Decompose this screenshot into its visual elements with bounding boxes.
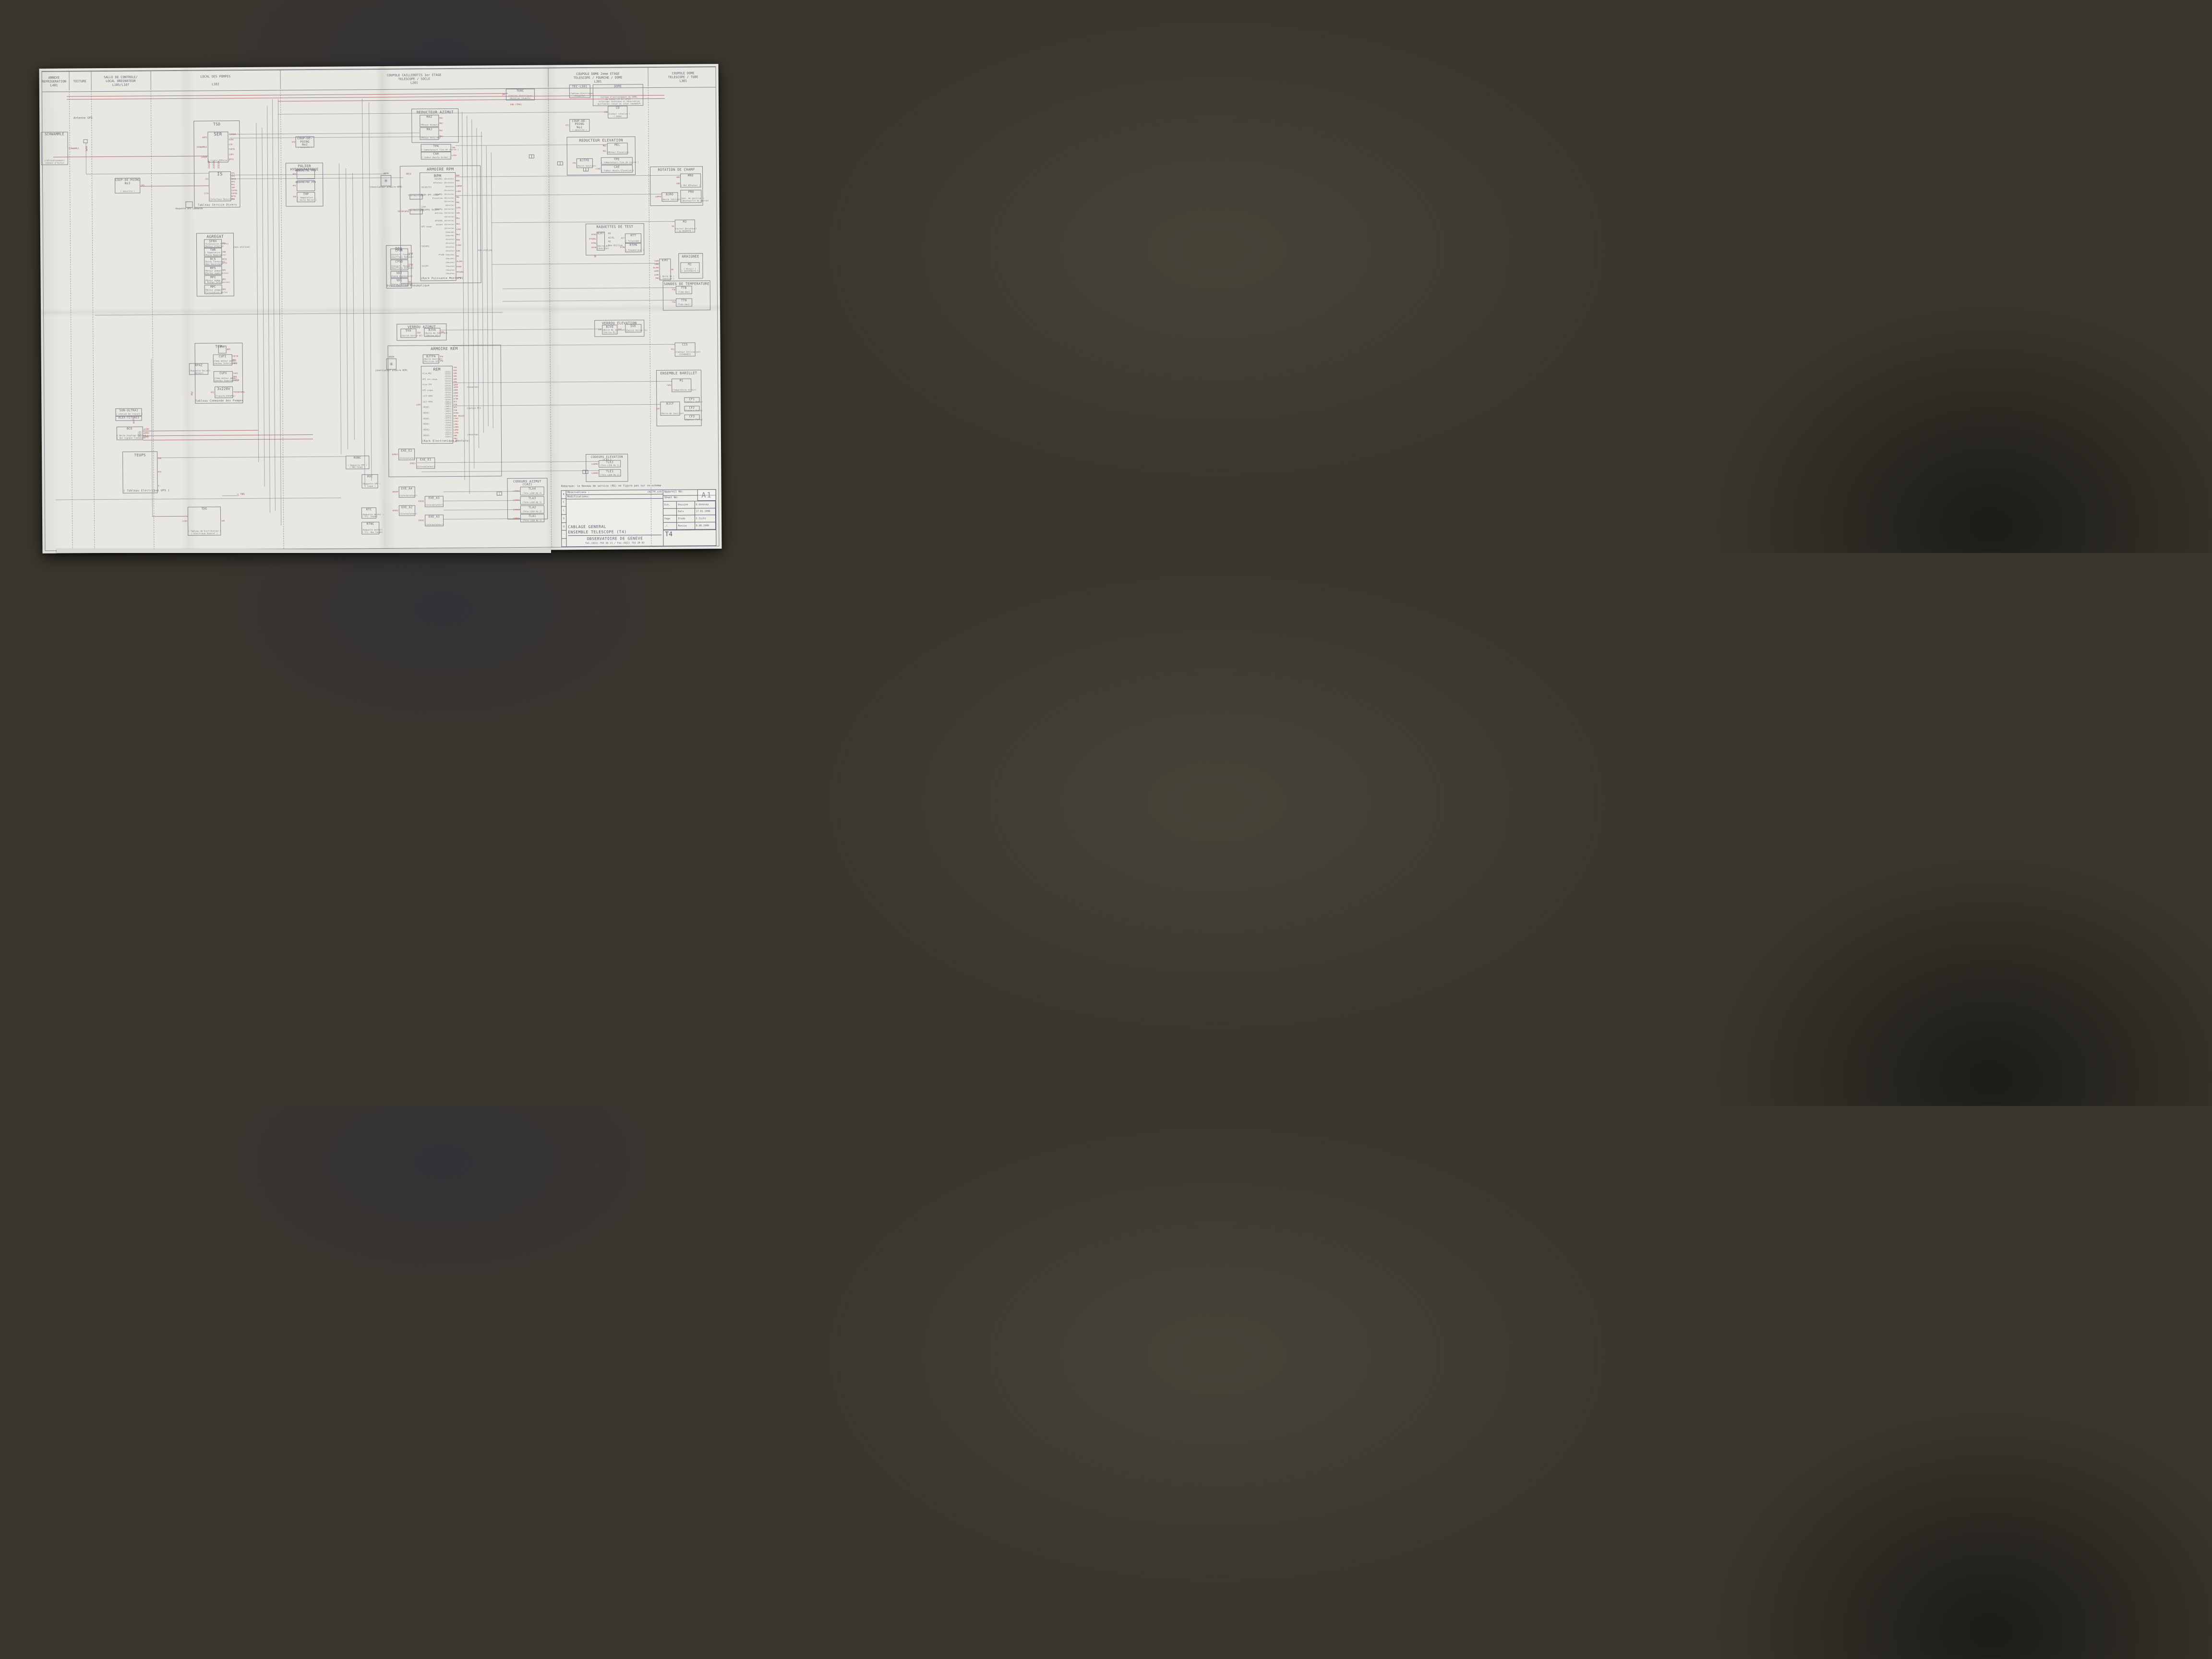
rpm-pin-lsro: LSRO (456, 191, 461, 192)
manometre-pps-title: MANOMETRE_PPS (295, 169, 316, 173)
bjve: BJVE(Boite de Jonction)(Verrou EL)SVESVE (602, 325, 618, 334)
raquette-ups-box: Raquette UPS commande (185, 201, 193, 207)
sva-subtitle: (Switch Verrou AZ) (401, 335, 416, 337)
cufs-title: CUFS (219, 372, 227, 375)
wire (143, 434, 313, 436)
tla1: TLA1(Tete LIDA No 1)LIDAA1 (520, 514, 544, 523)
mel-subtitle: (Moteur Elevation) (607, 151, 627, 154)
thp-subtitle: ( Huile Palier ) (297, 199, 314, 202)
floating-label: X4G (TDG) (510, 104, 522, 107)
m3-pins: M3 (672, 220, 675, 232)
coup-de-poing-2-subtitle: ( securite ) (296, 146, 313, 149)
mel: MEL(Moteur Elevation)MELREL (607, 143, 628, 155)
rem-pin-sci: SCI (454, 401, 457, 403)
rpm-pin-maz: MAZ (457, 234, 460, 236)
exe-a3-title: EXE_A3 (428, 496, 440, 500)
m1: M1(Temperature miroir)T1M1 (672, 379, 691, 392)
rem-pin-rtpn: RTPN (454, 412, 458, 414)
cufs: CUFS(Cmde moteur pompe)(poches Superieur… (214, 371, 233, 382)
ruc-title: RUC (367, 475, 373, 479)
bco-pins: LKSERLKRESLKOPT (143, 427, 149, 439)
bjm2-pins: T1M2T2M2ALIM2LDM2LCM2PM2 (653, 259, 660, 280)
mpc: MPC(Moteur pompe)(Circulation huile)MPC (204, 285, 222, 294)
raquette-ups-box-caption: Raquette UPS commande (176, 207, 203, 210)
rtnc-subtitle: ( Tri. Non Coupe) (362, 531, 379, 534)
revision-letter: C (562, 499, 566, 507)
bjrt-pin-rtro: RTRO (591, 234, 596, 236)
bjcf-pin-scf: SCF (656, 408, 660, 410)
vd2: VD2(Vanne Depression) (390, 271, 408, 278)
revision-letter: · (562, 539, 566, 546)
armoire-rem-title: ARMOIRE REM (388, 346, 500, 351)
manometre-ppi-pin-ppi: PPI (293, 185, 296, 187)
tdg: TDG( Tableau de Distribution )( electriq… (188, 506, 221, 535)
ser-pin-lcd: LCD (229, 144, 232, 145)
meta-cell: Etude (677, 516, 695, 523)
wire (230, 133, 420, 135)
tle2-pins: LIDAE2 (591, 461, 600, 467)
is-pin-cufid: CUFID (231, 192, 237, 194)
ser-pin-cufd: CUFD (229, 139, 234, 141)
column-separator (91, 92, 95, 550)
ser-title: SER (214, 132, 222, 138)
cufi-subtitle: (poches Inferieures) (214, 362, 232, 365)
mpi-pin-mpi: MPI (222, 279, 226, 281)
rem-pins: TPASVALDASVELDETPELDOFLDOSLDRFLDH3LCAALC… (452, 366, 464, 443)
thp: THP( Temperature )( Huile Palier )THP (297, 192, 315, 202)
floating-label: AGPS (84, 146, 87, 151)
maz-pin-raz: RAZ (439, 117, 443, 119)
bco-internal-labels: LK3LK1LK2 (138, 432, 141, 434)
column-header: TOITURE (69, 72, 91, 91)
exe-a3-pins: EXEA3 (418, 496, 425, 506)
file-name: cblT4.sch (648, 491, 662, 493)
column-separator (648, 88, 652, 546)
mro-pin-mro: MRO (676, 176, 680, 178)
exe-a4-subtitle: (Interpolateur) (399, 495, 415, 497)
tle2-subtitle: (Tete LIDA No 2) (600, 465, 620, 467)
rem-pin-pm2: PM2 (454, 435, 457, 437)
m2: M2( Miroir )( secondaire ) (680, 262, 699, 273)
thp-pin-thp: THP (293, 196, 296, 198)
tcp-container-footer: Tableau Commande des Pompes (195, 399, 242, 403)
ttb-pin-ttb: TTB (672, 289, 675, 291)
cufi: CUFI(Cmde moteur pompe)(poches Inferieur… (213, 354, 232, 365)
exe-e1-subtitle: (Interpolateur) (417, 466, 435, 469)
rem-pin-lcaa: LCAA (454, 395, 458, 397)
drawing-title: CABLAGE GENERAL (568, 524, 661, 529)
rem-pin-scf: SCF (454, 407, 457, 409)
rpaz-subtitle: (AZimut) (190, 372, 208, 374)
thr: THR( Temperature )(Huile Reservoire)THR (204, 248, 222, 256)
bjro-subtitle: (Boite Jonction) (662, 199, 677, 201)
rem-pin-csh: CSH (454, 404, 457, 406)
bjtpe-title: BJTPE (580, 159, 589, 162)
rpm-pin-maj: MAJ (457, 217, 460, 219)
is-title: IS (217, 172, 223, 177)
tle1-pin-lidae1: LIDAE1 (591, 472, 598, 474)
is-subtitle: (Interface Securite) (210, 198, 230, 201)
exe-a1-pin-exea1: EXEA1 (419, 520, 424, 522)
column-header: COUPOLE CAILLEBOTIS 1er ETAGE TELESCOPE … (280, 69, 549, 89)
terc: TERC(Tableau Electrique)(Rotation Coupol… (506, 89, 535, 100)
vd1: VD1(Vanne Depression)VD (390, 278, 408, 286)
maj-pins: RAJMAJ (438, 128, 443, 139)
column-header: SALLE DE CONTROLE/ LOCAL ORDINATEUR L105… (91, 71, 151, 90)
rem-pin-lsel: LSEL (454, 423, 458, 425)
exe-e1-title: EXE_E1 (420, 458, 432, 461)
rem-pin-lde: LDE (453, 378, 457, 380)
is-pin-cp2: CP2 (231, 175, 235, 177)
rtpn-title: RTPN (630, 243, 637, 247)
wire (56, 497, 341, 500)
wire (491, 221, 674, 223)
rpm-pin-rel: REL (456, 202, 459, 204)
rtnc-title: RTNC (367, 522, 374, 526)
sva-pin-sva: SVA (417, 332, 421, 334)
pro: PRO(pot. de position )(absolue+fin de co… (681, 190, 702, 203)
mro-pins: MRORRO (676, 174, 681, 187)
rpaz: RPAZ(Raquette Palier)(AZimut) (189, 363, 208, 375)
vd1-title: VD1 (397, 279, 402, 282)
conn-3 (529, 155, 534, 158)
sva-pins: SVA (416, 329, 421, 337)
exe-a1-title: EXE_A1 (429, 515, 440, 518)
tdg-pins: X4G (220, 507, 225, 535)
rpm-internal-labels: SOCAPEL (Directe)ROtateur (Directe)(Droi… (432, 177, 455, 276)
tsd-container-footer: Tableau Service Divers (195, 204, 240, 207)
teups-pin-x36: X36 (158, 457, 161, 459)
tle1-subtitle: (Tete LIDA No 1) (600, 474, 620, 476)
tla4-pin-lidaa4: LIDAA4 (513, 490, 519, 492)
bjm2-pin-ldm2: LDM2 (654, 270, 659, 272)
exe-e2-pins: EXEE2 (392, 449, 399, 460)
cf1: CF1(Capteur Force) (684, 397, 700, 402)
rpm-pin-lsaz: LSAZ (457, 244, 461, 246)
column-header: ANNEXE REFRIGERATION L401 (39, 72, 70, 91)
m3-pin-m3: M3 (672, 226, 674, 228)
maz-title: MAZ (427, 115, 433, 119)
mel-pins: MELREL (603, 143, 607, 154)
floating-label: (reserve) (467, 386, 478, 389)
m1-subtitle: (Temperature miroir) (672, 389, 691, 391)
floating-label: RO (608, 233, 611, 236)
is-pin-thp: THP (231, 187, 235, 189)
organization-phone: Tel.(022) 755 26 11 / Fax.(022) 755 39 8… (568, 541, 661, 545)
exe-a2-subtitle: (Interpolateur) (399, 513, 415, 516)
tle1-title: TLE1 (606, 470, 613, 473)
terc-title: TERC (517, 89, 524, 93)
is-pin-ctcp: CTCP (204, 192, 209, 194)
maj: MAJ(Moteur Anti-Jeu)RAJMAJ (420, 127, 439, 140)
meta-cell: Page (663, 516, 677, 523)
wire (503, 300, 676, 302)
floating-label: AZ/EL (608, 237, 615, 240)
transfo-3x220v-pin-x61: X61 (211, 391, 214, 393)
cpsr-title: CPSR (395, 249, 403, 252)
bjrt-pin-rtazel: RTAZEL (589, 238, 596, 240)
m3-title: M3 (683, 220, 687, 224)
exe-e1-pin-exee1: EXEE1 (410, 462, 416, 464)
tla1-title: TLA1 (529, 515, 536, 518)
floating-label: LKTP (132, 419, 134, 424)
is-pin-frh: FRH (231, 198, 235, 200)
caa-pin-lcaa: LCAA (452, 155, 457, 156)
maj-pin-maj: MAJ (439, 135, 443, 137)
ttb-subtitle: (Tube Bas) (676, 291, 692, 293)
bcs-pins: BCS1BCS2 (221, 257, 227, 265)
cis-subtitle: (SCHODREX) (675, 354, 695, 356)
meta-grid: Ech.DessineO.GenevayDate17.01.1996PageEt… (663, 501, 716, 530)
tla2-pins: LIDAA2 (513, 506, 521, 513)
mel-pin-mel: MEL (603, 145, 606, 147)
schwammle-box-subtitle: (retour d'huile) (42, 162, 68, 165)
tdg-title: TDG (201, 507, 207, 511)
maj-pin-raj: RAJ (439, 130, 443, 132)
wire (352, 173, 355, 440)
rpm-pin-raz: RAZ (457, 239, 460, 241)
pro-subtitle: (absolue+fin de course) (681, 200, 701, 202)
vd1-pin-vd: VD (409, 281, 411, 283)
cis-pin-sci: SCI (671, 349, 674, 350)
teups-pin-x35: X35 (158, 471, 161, 473)
schwammle-box-pin-schwammle: SCHWAMMLE (69, 147, 79, 149)
schematic-sheet: Remarque: le Reseau de service (RS) ne f… (39, 64, 721, 553)
rem-pin-lcae: LCAE (454, 398, 458, 400)
sfrh-pin-frh: FRH (222, 242, 226, 244)
terc-subtitle: (Rotation Coupole) (506, 97, 534, 100)
revision-letter: L (562, 507, 566, 515)
dome-subtitle: - quittances cimier et volet (modemCP) (593, 103, 643, 106)
bjm2-title: BJM2 (662, 259, 668, 262)
mro-title: MRO (688, 174, 694, 178)
floating-label: X62 (192, 391, 194, 395)
coup-de-poing-3-subtitle: ( securite ) (115, 190, 140, 192)
cufs-subtitle: (poches Superieures) (214, 380, 232, 382)
tla2-pin-lidaa2: LIDAA2 (513, 509, 520, 511)
rtpn: RTPN( Pneumatique )RTPN (625, 243, 641, 252)
tla2-subtitle: (Tete LIDA No 2) (521, 511, 544, 513)
bjrt-pin-rtpn: RTPN (591, 247, 596, 249)
mel-title: MEL (614, 143, 620, 146)
floating-label: Antenne GPS (73, 117, 93, 120)
column-separator (548, 88, 552, 547)
tle2-title: TLE2 (606, 461, 613, 464)
bjva: BJVA(Boite de Jonction)(Verrou AZ)SVA (424, 328, 440, 337)
cufi-pins: CUFIDMPICUFI (231, 355, 238, 365)
rem-pin-lda: LDA (453, 373, 457, 374)
sfrh: SFRH(Surpression Filtre)(Retour d'Huile)… (204, 239, 222, 248)
revision-letter: D (562, 515, 566, 523)
observations-label: Observations : (567, 491, 589, 494)
meta-cell: Ech. (663, 501, 677, 508)
coup-de-poing-1-pins: CP1 (565, 120, 570, 131)
caa-pins: LCAA (451, 152, 457, 159)
tle2: TLE2(Tete LIDA No 2)LIDAE2 (599, 460, 621, 468)
sve-subtitle: (Switch Verrou EL) (625, 329, 641, 332)
meta-cell: E.Ischi (695, 515, 716, 522)
sva: SVA(Switch Verrou AZ)SVA (400, 329, 417, 337)
bco-pin-lkser: LKSER (144, 428, 149, 430)
photo-background: { "sheet": { "bounds": [0, 4.35, 7.6, 16… (0, 0, 737, 553)
rtnc: RTNC(Raquette moteur)( Tri. Non Coupe) (361, 522, 379, 534)
thr-pins: THR (221, 248, 226, 256)
rtt-pins: RTT (621, 234, 625, 242)
rpm-pin-mel: MEL (456, 196, 459, 198)
manometre-pps-pins: PPS (293, 169, 297, 179)
maj-title: MAJ (427, 128, 433, 132)
is-pin-cp1: CP1 (231, 172, 235, 174)
cpsr: CPSR(Convert. Pneuma.)(Soufflets Radiaux… (390, 248, 408, 259)
codeurs-azimut-title: CODEURS AZIMUT (CAZ) (508, 479, 547, 486)
tla1-pins: LIDAA1 (513, 515, 521, 522)
meta-cell: 8.08.2000 (695, 522, 716, 529)
coup-de-poing-1: COUP-DE-POING No1( securite )CP1 (569, 119, 590, 132)
floating-label: → TEC (237, 493, 245, 496)
tth-subtitle: (Tube Haut) (676, 304, 692, 306)
tpa: TPA( commutateurs fins de course )TPA (421, 144, 451, 152)
rpm-pin-lda: LDA (457, 250, 460, 252)
tpe-title: TPE (614, 157, 620, 161)
tla3-title: TLA3 (529, 497, 536, 500)
teups-pins: X36X35X.. (157, 452, 162, 493)
dome-title: DOME (614, 85, 622, 88)
tpa-pins: TPA (451, 144, 455, 151)
cpsd-subtitle: (Soufflets Dorsaux) (391, 267, 408, 270)
bjve-pins: SVE (617, 325, 622, 334)
rem: REM(Rack Electronique Monture)Alim.MGCUP… (421, 366, 454, 444)
ser-pin-agps: AGPS (202, 136, 207, 138)
wire (222, 495, 239, 496)
cf1-subtitle: (Capteur Force) (685, 401, 699, 404)
thermostats-2-pin-trisocapel: TRISOCAPEL (397, 211, 409, 213)
rpm-pin-lsaj: LSAJ (457, 228, 461, 230)
is-pin-cufsd: CUFSD (231, 190, 237, 192)
remark-note: Remarque: le Reseau de service (RS) ne f… (561, 484, 715, 488)
wire (369, 102, 372, 481)
runc-title: RUNC (354, 456, 361, 459)
cd-title: CD (616, 106, 620, 109)
sun-ultra1: SUN-ULTRA1( station de travail ) (116, 408, 142, 416)
exe-a1: EXE_A1(Interpolateur)EXEA1 (425, 515, 444, 527)
wire (503, 287, 676, 289)
bjtpa-pin-tpa: TPA (440, 356, 443, 358)
meta-cell: ./. (663, 523, 677, 530)
bjva-pin-sva: SVA (441, 331, 444, 333)
rpm-footer: (Rack Puissance Monture) (421, 277, 456, 280)
transfo-3x220v-subtitle: (Transfo.SOCAPEL) (215, 395, 232, 397)
cd-pin-lcd: LCD (604, 111, 607, 113)
coup-de-poing-3: COUP-DE-POING No3( securite )CP3 (115, 178, 141, 193)
maz-pins: RAZMAZ (438, 115, 443, 126)
vrem-fan-label: VREM (389, 356, 394, 359)
column-separator (280, 90, 284, 549)
coup-de-poing-1-subtitle: ( securite ) (570, 129, 589, 132)
cpsd-title: CPSD (396, 260, 403, 264)
wire (362, 98, 365, 486)
coup-de-poing-3-pins: CP3 (140, 179, 144, 192)
cis-title: CIS (682, 343, 688, 346)
tec-l301-subtitle: (Coupole) (570, 95, 590, 97)
tla2: TLA2(Tete LIDA No 2)LIDAA2 (520, 505, 544, 514)
tla2-title: TLA2 (529, 506, 536, 509)
exe-a4-pins: EXEA4 (392, 487, 399, 497)
bjm2: BJM2( Boite de )( Jonction )T1M2T2M2ALIM… (659, 259, 671, 281)
tdg-pin-ltdg: LTDG (182, 520, 187, 522)
tle1: TLE1(Tete LIDA No 1)LIDAE1 (599, 469, 621, 477)
cpsd-pin-cpsd: CPSD (409, 264, 413, 266)
cufs-pins: CUFSMPSCUFSD (232, 372, 239, 382)
tla3: TLA3(Tete LIDA No 3)LIDAA3 (520, 496, 544, 505)
is-pin-cp3: CP3 (205, 179, 208, 180)
rtt: RTT( Telescope )RTT (625, 234, 641, 243)
runc-subtitle: ( Non Coupe ) (346, 467, 369, 469)
rem-footer: (Rack Electronique Monture) (422, 440, 453, 443)
column-header: COUPOLE DOME TELESCOPE / TUBE L301 (648, 67, 718, 86)
column-header: LOCAL DES POMPES L102 (151, 71, 281, 90)
mps-pins: MPS (221, 266, 226, 274)
bco-title: BCO (127, 427, 132, 431)
wire (456, 175, 680, 177)
ensemble-barillet-title: ENSEMBLE BARILLET (656, 372, 701, 376)
sva-title: SVA (406, 329, 411, 333)
pro-title: PRO (688, 190, 694, 193)
wire (143, 439, 313, 440)
rem-pin-lgps: LGPS (416, 404, 421, 406)
ser-pins: CIMIERCUFDLCDCUFSSLGPSBCS2 (228, 132, 236, 162)
thr-pin-thr: THR (222, 251, 226, 253)
tle1-pins: LIDAE1 (591, 470, 600, 476)
vrpm-fan-label: VRPM (384, 173, 389, 176)
bjtpe-pins: TPE (572, 159, 577, 168)
bco: BCO( Boite Couplage Optique )( des signa… (116, 427, 143, 440)
rpm-pin-alim2: ALIM2 (457, 261, 462, 263)
tla4: TLA4(Tete LIDA No 4)LIDAA4 (520, 486, 544, 495)
fan-icon: ✳ (384, 178, 388, 184)
under-sheet-edge (57, 549, 551, 553)
sve-title: SVE (630, 325, 636, 328)
rtc-title: RTC (366, 508, 372, 511)
mro: MRO( Mot.ROtateur )MRORRO (680, 174, 701, 188)
sun-ultra1-subtitle: ( station de travail ) (116, 413, 142, 416)
mpi-pins: MPI (221, 276, 226, 284)
thermostats-2-pins: TRISOCAPEL (397, 210, 410, 214)
wire (346, 168, 348, 450)
cpsd: CPSD(Convert. Pneuma.)(Soufflets Dorsaux… (390, 260, 408, 270)
rpm-pin-rro: RRO (456, 180, 459, 182)
rem-pin-ldm2: LDM2 (454, 429, 458, 431)
thp-title: THP (303, 192, 309, 196)
rpm-pin-mro: MRO (456, 175, 459, 177)
schwammle-box: SCHWAMMLE(refroidissement)(retour d'huil… (41, 132, 68, 165)
vd1-pins: VD (408, 279, 411, 286)
tth-pin-tth: TTH (672, 301, 675, 303)
organization-name: OBSERVATOIRE DE GENEVE (568, 536, 661, 541)
rem-pin-lsaz: LSAZ (454, 418, 458, 420)
bco-pin-lkres: LKRES (144, 432, 149, 434)
rem-pin-lsaj: LSAJ (454, 421, 458, 422)
meta-cell (663, 508, 677, 516)
rem-pin-ldh3: LDH3 (454, 392, 458, 394)
tla3-pin-lidaa3: LIDAA3 (513, 499, 519, 501)
rtt-subtitle: ( Telescope ) (625, 240, 641, 242)
bcs-pin-bcs2: BCS2 (222, 262, 227, 264)
exe-a3: EXE_A3(Interpolateur)EXEA3 (424, 496, 444, 507)
rpm-pin-rtro: RTRO (457, 266, 461, 268)
wire (95, 312, 503, 315)
cufs-pin-cufsd: CUFSD (233, 379, 239, 381)
mpi: MPI(Moteur pompe )( Poches Inferieures)M… (204, 276, 222, 284)
